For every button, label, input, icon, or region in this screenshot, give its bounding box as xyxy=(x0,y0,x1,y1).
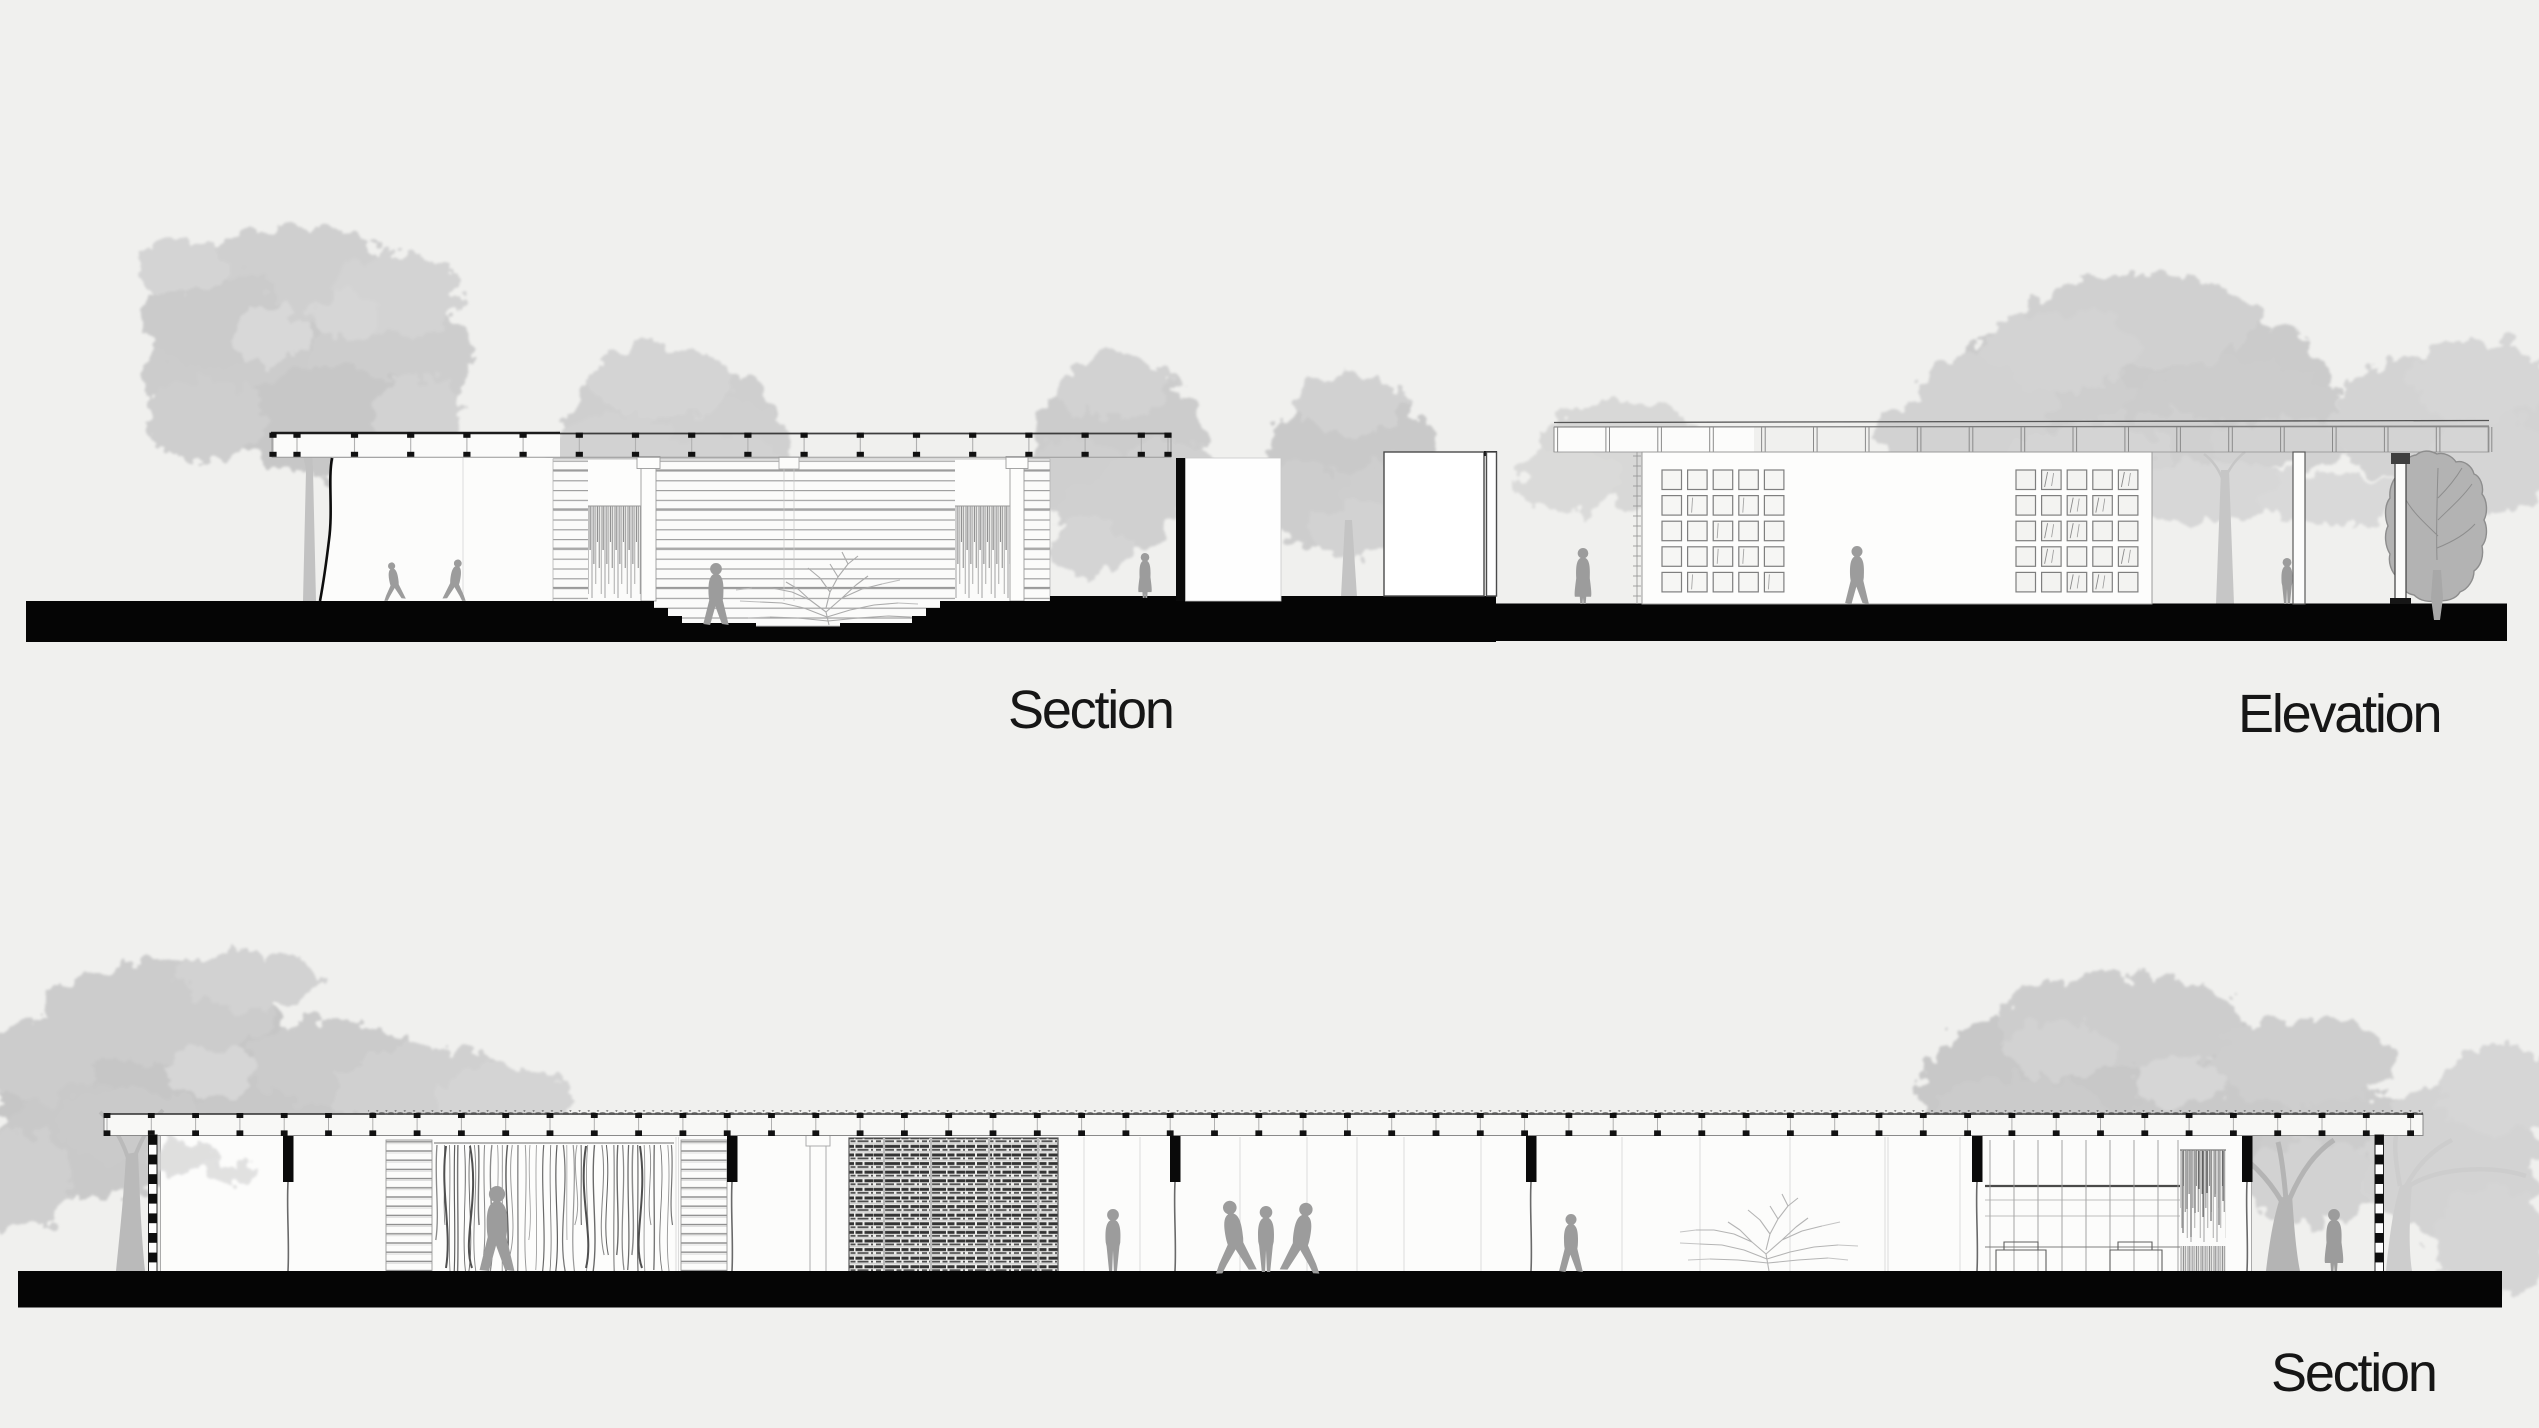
svg-text:Elevation: Elevation xyxy=(2238,684,2440,744)
svg-text:Section: Section xyxy=(2271,1343,2436,1403)
svg-text:Section: Section xyxy=(1008,680,1173,740)
